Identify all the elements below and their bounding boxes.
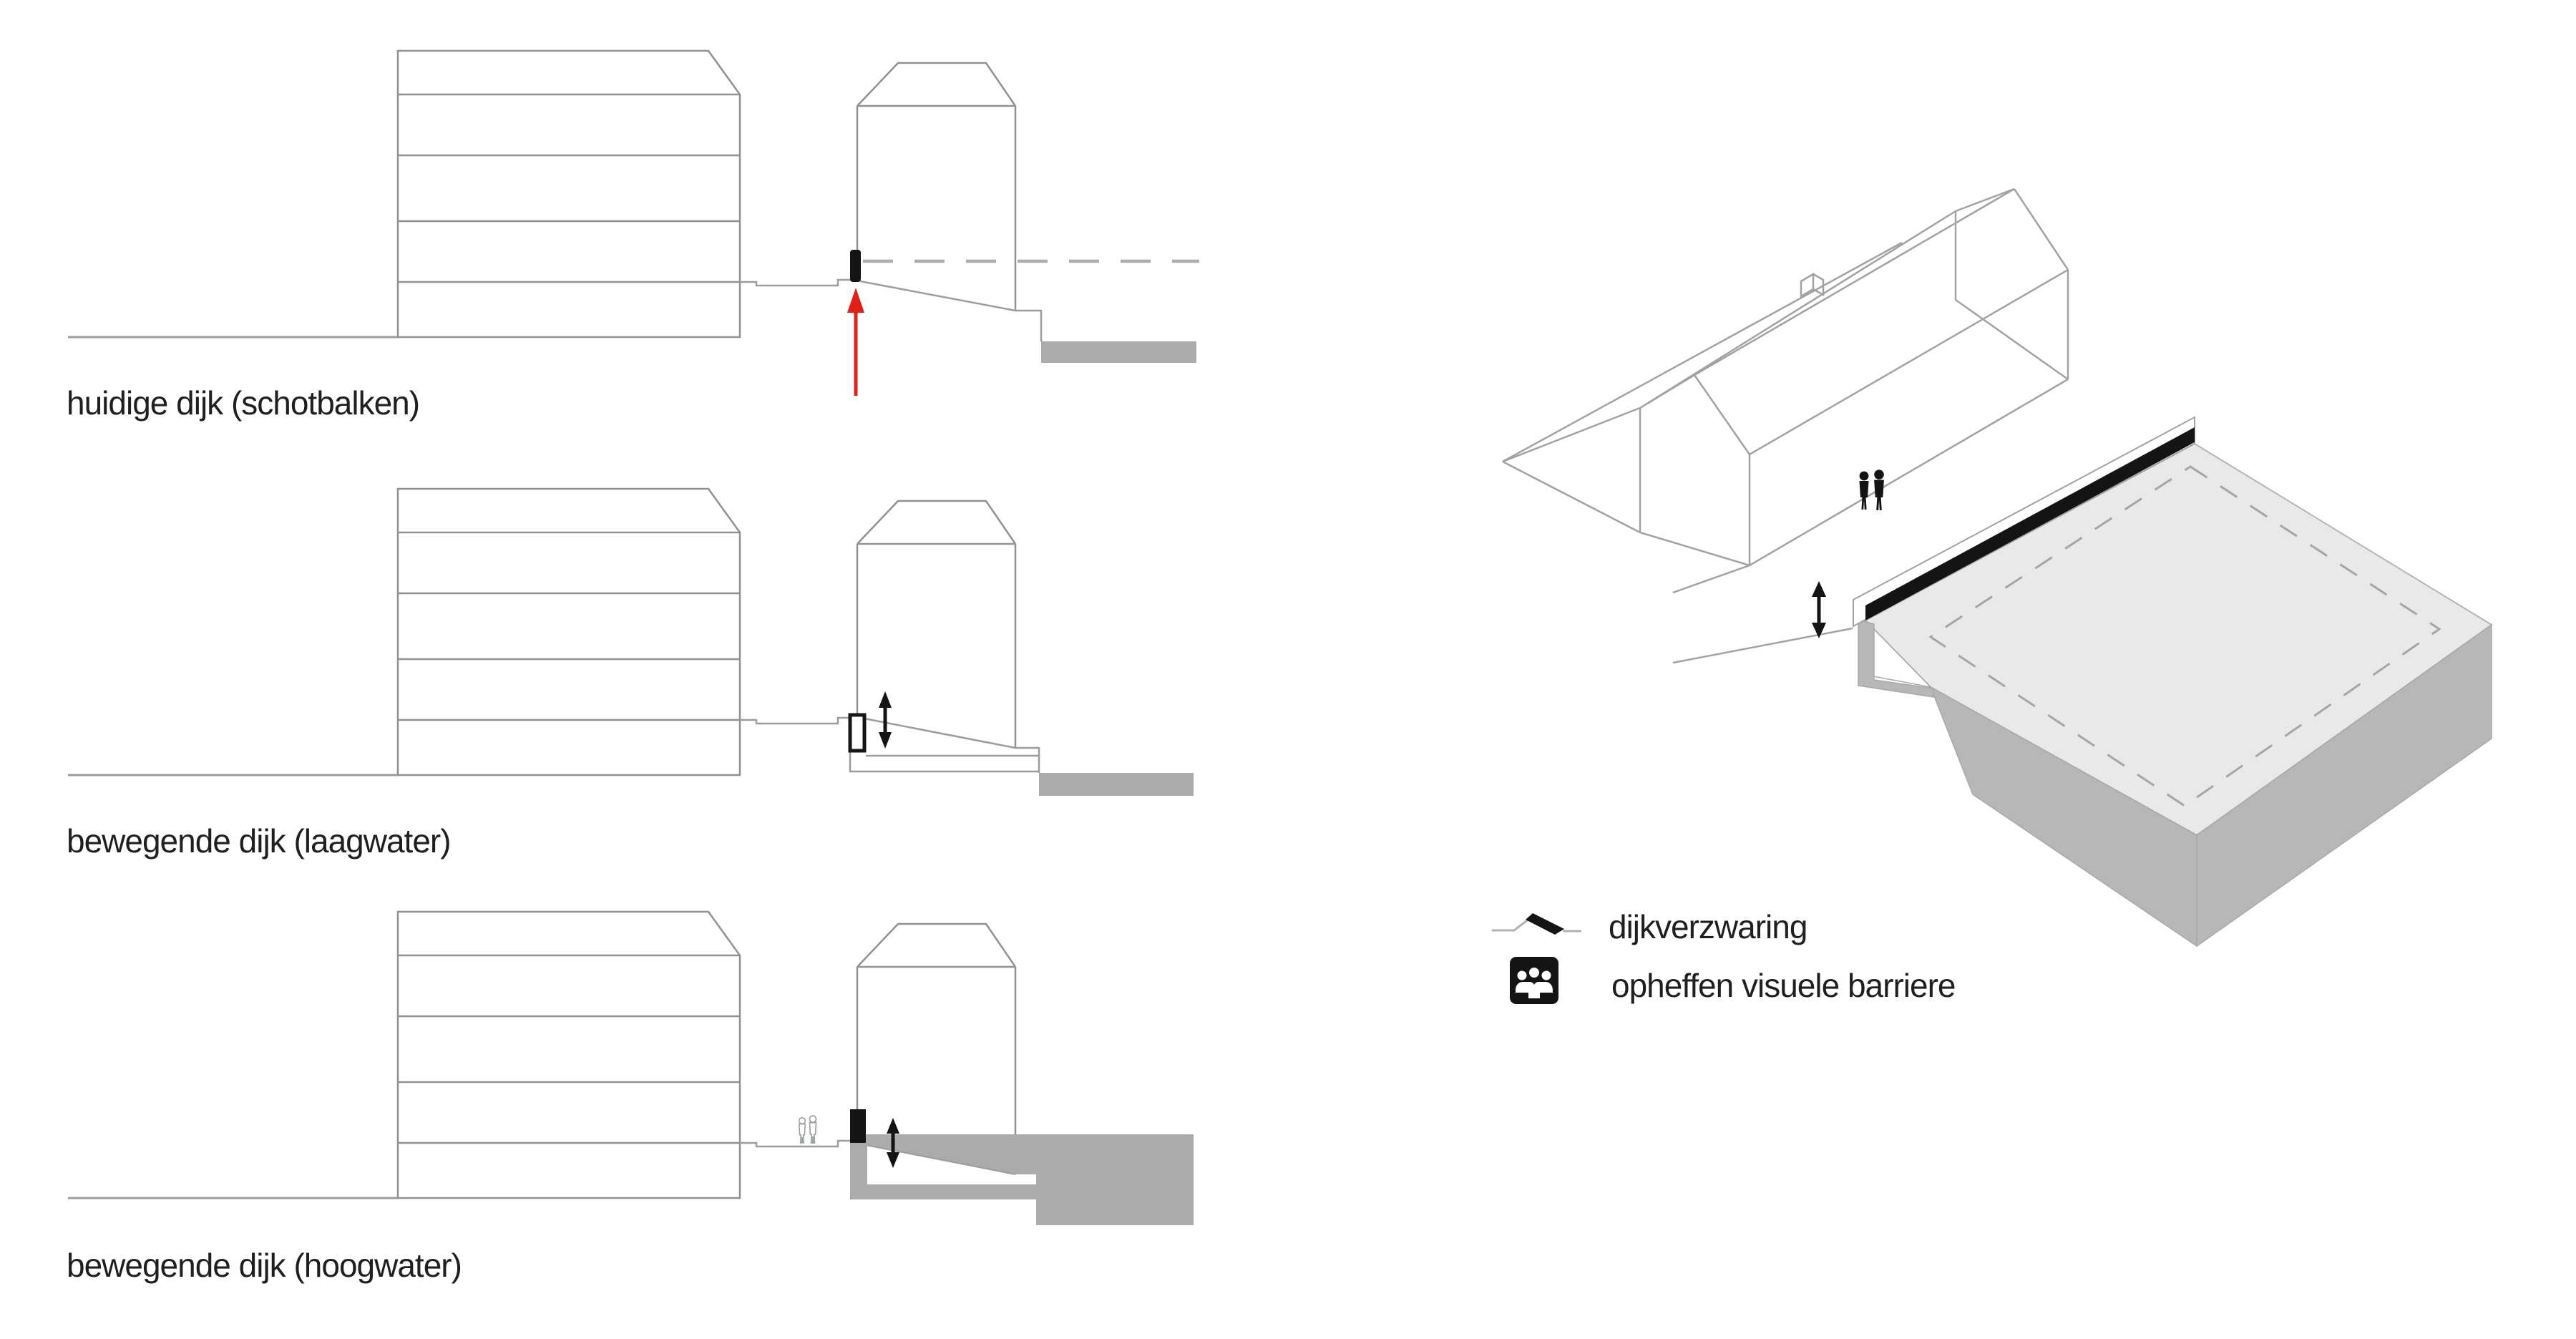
water-body	[1041, 341, 1196, 363]
up-down-arrow-icon	[879, 691, 892, 749]
legend-label-opheffen-visuele-barriere: opheffen visuele barriere	[1611, 966, 1955, 1005]
water-body	[1039, 773, 1194, 796]
legend-label-dijkverzwaring: dijkverzwaring	[1609, 907, 1807, 946]
section-bewegende-dijk-hoogwater	[68, 912, 1194, 1225]
diagram-canvas: huidige dijk (schotbalken) bewegende dij…	[0, 0, 2576, 1339]
dike-reinforcement-icon	[1492, 913, 1581, 935]
people-figures	[799, 1116, 816, 1143]
iso-site-ground	[1503, 243, 1902, 663]
high-water-body	[866, 1134, 1194, 1225]
section-bewegende-dijk-laagwater	[68, 489, 1194, 796]
diagram-artwork	[0, 0, 2576, 1339]
iso-people-figures	[1860, 469, 1884, 510]
iso-up-down-arrow-icon	[1812, 581, 1826, 638]
section-label-bewegende-dijk-laagwater: bewegende dijk (laagwater)	[67, 822, 451, 860]
section-label-bewegende-dijk-hoogwater: bewegende dijk (hoogwater)	[67, 1246, 462, 1285]
section-huidige-dijk	[68, 51, 1199, 396]
red-arrow-icon	[847, 288, 864, 396]
section-buildings	[68, 912, 1015, 1198]
legend-icons	[1492, 913, 1581, 1004]
dike-slope-line	[860, 281, 1041, 341]
dike-slope-line	[864, 719, 1039, 773]
section-label-huidige-dijk: huidige dijk (schotbalken)	[67, 384, 419, 422]
iso-house	[1640, 189, 2068, 565]
remove-visual-barrier-icon	[1510, 957, 1558, 1004]
movable-barrier-raised	[850, 1109, 866, 1143]
movable-barrier-lowered	[850, 715, 864, 751]
barrier-slot-structure	[850, 751, 1039, 771]
isometric-view	[1503, 189, 2492, 946]
section-buildings	[68, 51, 1015, 337]
iso-platform	[1858, 444, 2492, 946]
stoplog-barrier	[851, 250, 860, 281]
section-buildings	[68, 489, 1015, 775]
